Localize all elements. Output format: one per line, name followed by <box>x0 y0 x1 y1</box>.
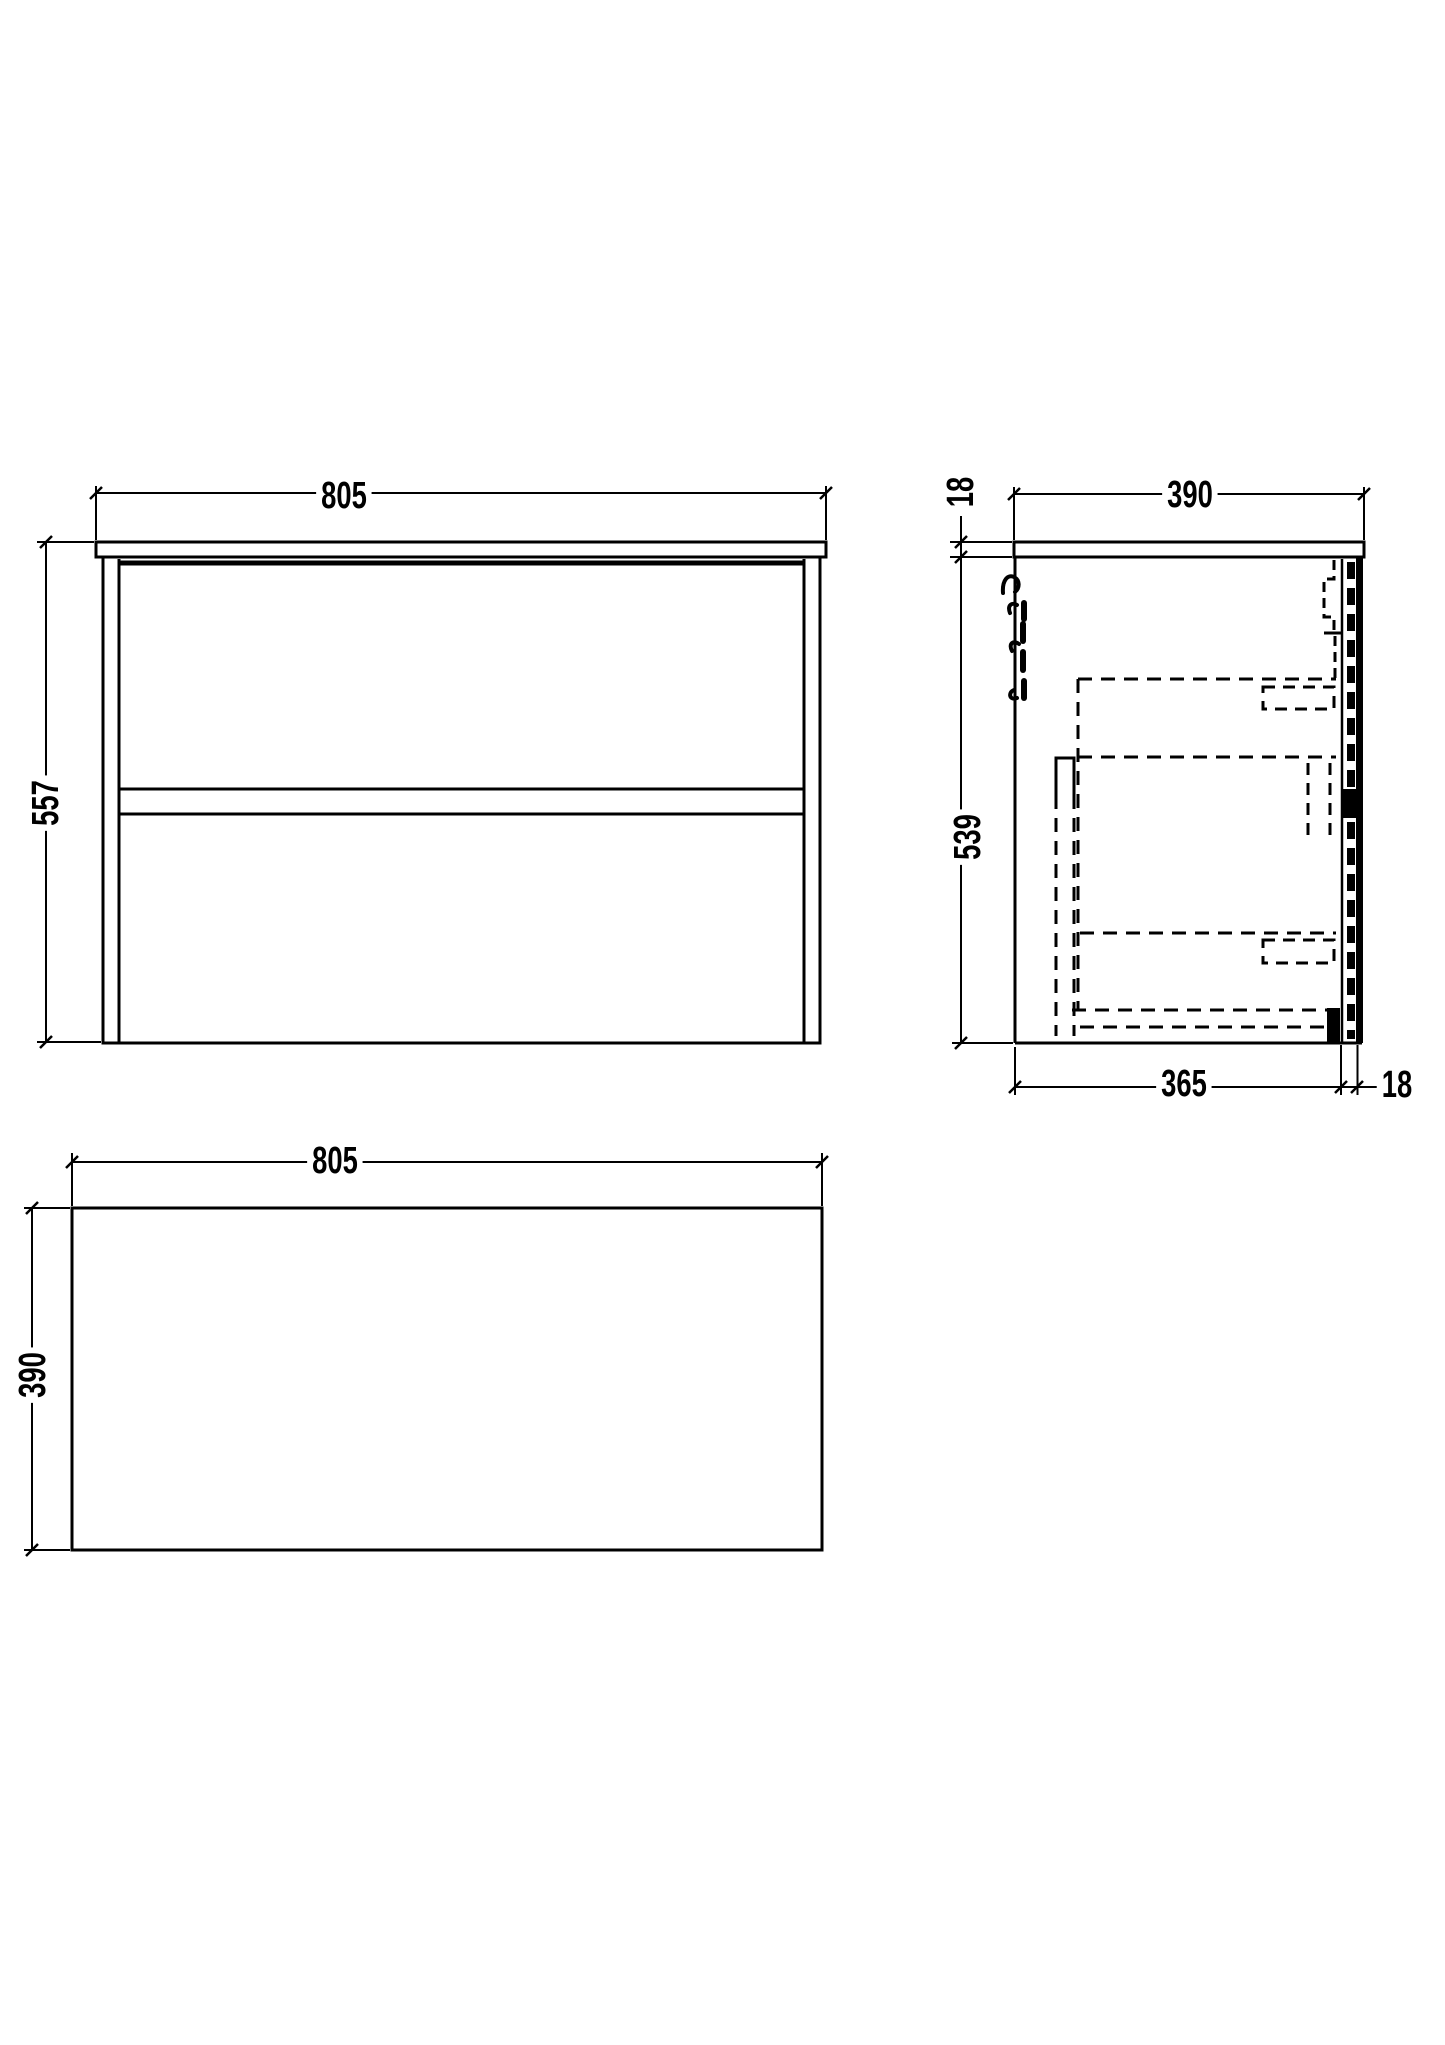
technical-drawing-page: 805 557 18 390 539 365 18 805 390 <box>0 0 1445 2045</box>
plan-width-dimension-label: 805 <box>307 1140 363 1182</box>
side-top-thickness-dimension-label: 18 <box>940 472 982 513</box>
side-depth-dimension-label: 390 <box>1162 474 1218 516</box>
lower-wall-bracket <box>1341 789 1363 818</box>
upper-drawer-runner <box>1263 687 1334 709</box>
side-height-dimension-label: 539 <box>947 809 989 865</box>
side-back-panel-thickness-dimension-label: 18 <box>1377 1064 1418 1106</box>
drawing-canvas <box>0 0 1445 2045</box>
plan-view-drawing <box>24 1153 828 1556</box>
front-view-drawing <box>37 486 832 1048</box>
front-height-dimension-label: 557 <box>25 775 67 831</box>
handwritten-annotation <box>1003 576 1024 698</box>
lower-drawer-runner <box>1263 940 1334 963</box>
side-body-depth-dimension-label: 365 <box>1156 1063 1212 1105</box>
front-width-dimension-label: 805 <box>316 475 372 517</box>
plan-depth-dimension-label: 390 <box>12 1347 54 1403</box>
upper-wall-bracket <box>1324 560 1334 632</box>
